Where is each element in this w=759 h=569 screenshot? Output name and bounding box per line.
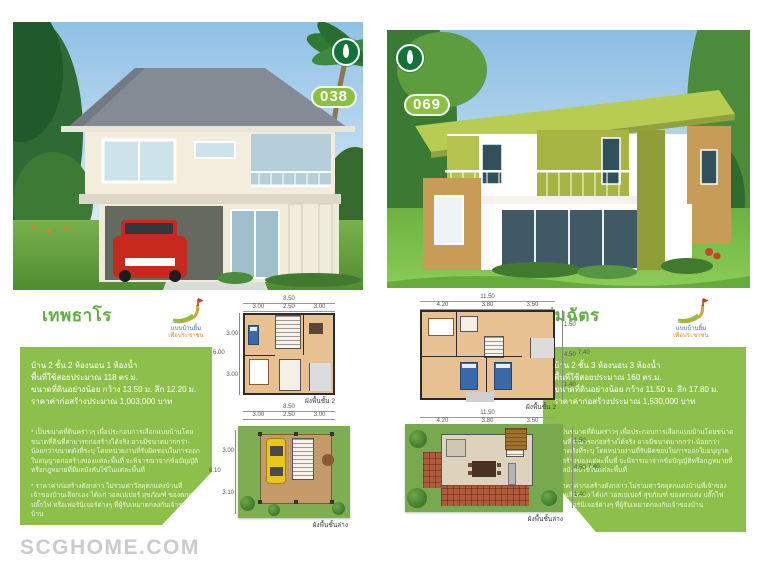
chair xyxy=(497,471,501,475)
house-rendering-069 xyxy=(387,30,750,288)
bed xyxy=(494,362,512,390)
spec-area: พื้นที่ใช้สอยประมาณ 160 ตร.ม. xyxy=(554,372,735,384)
program-seal-icon xyxy=(396,44,424,72)
balcony xyxy=(309,363,331,391)
dining-table xyxy=(472,461,496,477)
plan-caption-ground-069: ผังพื้นชั้นล่าง xyxy=(503,514,563,524)
bed xyxy=(249,359,269,385)
chair xyxy=(468,471,472,475)
dims-side-plan1-069: 1.50 4.50 1.40 xyxy=(572,428,586,508)
bathroom xyxy=(279,359,301,391)
bed xyxy=(428,318,454,336)
house-rendering-038 xyxy=(13,22,363,290)
spec-box-038: บ้าน 2 ชั้น 2 ห้องนอน 1 ห้องน้ำ พื้นที่ใ… xyxy=(20,347,212,525)
balcony xyxy=(530,338,554,358)
brand-logo-text2: เพื่อประชาชน xyxy=(663,333,719,340)
dims-top-plan2-038: 8.50 3.00 2.50 3.00 xyxy=(243,296,335,312)
spec-price: ราคาค่าก่อสร้างประมาณ 1,003,000 บาท xyxy=(31,396,201,408)
car xyxy=(266,438,286,484)
spec-land: ขนาดที่ดินอย่างน้อย กว้าง 13.50 ม. ลึก 1… xyxy=(31,384,201,396)
tree xyxy=(541,490,557,506)
dims-side-plan2-069: 1.50 4.50 1.40 xyxy=(562,310,576,400)
brochure-page: 038 เทพธาโร แบบบ้านยิ้ม เพื่อประชาชน บ้า… xyxy=(0,0,759,569)
tree xyxy=(332,502,345,515)
model-number-badge-038: 038 xyxy=(311,86,357,108)
bed xyxy=(460,362,478,390)
stairs xyxy=(275,315,301,349)
stairs xyxy=(505,428,527,450)
post xyxy=(258,432,262,436)
dims-side-total-plan1-069: 7.40 xyxy=(588,464,600,470)
disclaimer-price: * ราคาค่าก่อสร้างดังกล่าว ไม่รวมค่าวัสดุ… xyxy=(31,482,201,520)
room xyxy=(446,439,466,457)
dims-side-total-plan1-038: 6.10 xyxy=(209,468,221,474)
stairs xyxy=(292,438,314,480)
spec-area: พื้นที่ใช้สอยประมาณ 118 ตร.ม. xyxy=(31,372,201,384)
terrace xyxy=(466,392,494,402)
stairs xyxy=(484,336,504,358)
brand-logo-text1: แบบบ้านยิ้ม xyxy=(158,326,214,333)
dims-top-plan2-069: 11.50 4.20 3.80 3.50 xyxy=(420,294,555,310)
house-photo-069 xyxy=(387,30,750,288)
program-seal-icon xyxy=(332,38,360,66)
wall xyxy=(456,312,457,356)
table xyxy=(322,454,334,466)
dims-side-plan2-038: 3.00 3.00 xyxy=(226,313,240,395)
spec-rooms: บ้าน 2 ชั้น 3 ห้องนอน 3 ห้องน้ำ xyxy=(554,360,735,372)
wall xyxy=(245,355,275,356)
car-rear-window xyxy=(270,467,283,476)
chair xyxy=(468,463,472,467)
tree xyxy=(268,504,280,516)
car-windshield xyxy=(270,446,283,456)
post xyxy=(294,500,298,504)
floorplan-level2-038 xyxy=(243,313,335,395)
brand-logo-left: แบบบ้านยิ้ม เพื่อประชาชน xyxy=(158,296,214,340)
model-title-038: เทพธาโร xyxy=(42,302,112,329)
dims-side-plan1-038: 3.00 3.10 xyxy=(222,430,236,514)
watermark: SCGHOME.COM xyxy=(20,536,200,560)
dims-side-total-plan2-038: 6.00 xyxy=(213,350,225,356)
house-photo-038 xyxy=(13,22,363,290)
brand-logo-text2: เพื่อประชาชน xyxy=(158,333,214,340)
bathroom xyxy=(460,316,478,332)
wall xyxy=(422,356,522,357)
floorplan-ground-038 xyxy=(238,426,350,518)
spec-rooms: บ้าน 2 ชั้น 2 ห้องนอน 1 ห้องน้ำ xyxy=(31,360,201,372)
dims-side-total-plan2-069: 7.40 xyxy=(578,350,590,356)
model-number-badge-069: 069 xyxy=(404,94,450,116)
post xyxy=(294,432,298,436)
plan-caption-ground-038: ผังพื้นชั้นล่าง xyxy=(288,520,348,530)
dining-table xyxy=(309,323,323,334)
tree xyxy=(409,430,427,448)
disclaimer-land: * เป็นขนาดที่ดินคร่าวๆ เพื่อประกอบการเลื… xyxy=(31,428,201,476)
swan-boat-logo-icon xyxy=(169,296,203,326)
floorplan-level2-069 xyxy=(420,310,555,400)
post xyxy=(330,432,334,436)
bed xyxy=(248,325,259,345)
tree xyxy=(240,496,255,511)
chair xyxy=(497,463,501,467)
floorplan-ground-069 xyxy=(405,424,563,512)
brand-logo-right: แบบบ้านยิ้ม เพื่อประชาชน xyxy=(663,296,719,340)
spec-price: ราคาค่าก่อสร้างประมาณ 1,530,000 บาท xyxy=(554,396,735,408)
brand-logo-text1: แบบบ้านยิ้ม xyxy=(663,326,719,333)
spec-land: ขนาดที่ดินอย่างน้อย กว้าง 11.50 ม. ลึก 1… xyxy=(554,384,735,396)
wall xyxy=(303,315,304,355)
swan-boat-logo-icon xyxy=(674,296,708,326)
kitchen-counter xyxy=(508,463,516,485)
tree xyxy=(407,488,427,508)
post xyxy=(258,500,262,504)
dims-bottom-plan2-038: 8.50 3.00 2.50 3.00 xyxy=(243,404,335,420)
